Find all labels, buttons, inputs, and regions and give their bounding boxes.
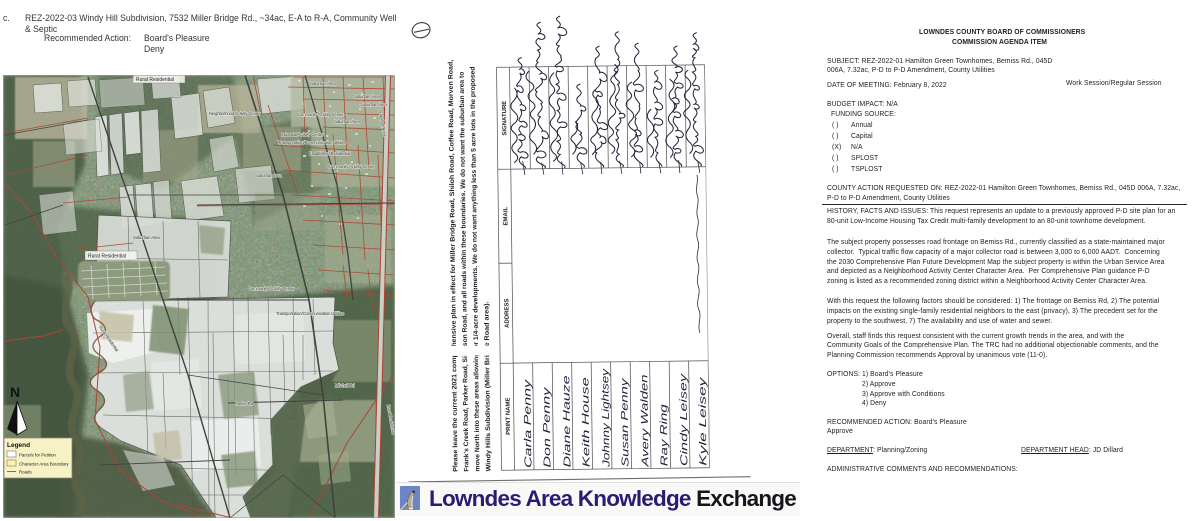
- svg-text:Suburban Area: Suburban Area: [353, 94, 380, 99]
- svg-text:Windy Hills Subdivision (Mille: Windy Hills Subdivision (Miller Bridge R…: [483, 301, 492, 471]
- svg-text:Suburban Area: Suburban Area: [309, 81, 336, 86]
- svg-text:Keith House: Keith House: [580, 376, 592, 467]
- svg-text:PRINT NAME: PRINT NAME: [506, 397, 512, 434]
- svg-text:SIGNATURE: SIGNATURE: [502, 101, 508, 136]
- svg-text:Established Residential: Established Residential: [309, 151, 350, 156]
- svg-text:Rural Residential: Rural Residential: [88, 254, 126, 260]
- svg-text:Suburban Area: Suburban Area: [255, 173, 282, 178]
- svg-text:Diane Hauze: Diane Hauze: [561, 375, 573, 468]
- svg-text:Suburban Area: Suburban Area: [333, 119, 360, 124]
- svg-text:Cindy Leisey: Cindy Leisey: [678, 372, 690, 466]
- svg-text:move North into these areas al: move North into these areas allowing for…: [470, 67, 482, 472]
- svg-text:Ray Ring: Ray Ring: [659, 404, 671, 467]
- svg-text:Community Activity Center: Community Activity Center: [297, 112, 344, 117]
- svg-text:Avery Walden: Avery Walden: [639, 374, 651, 468]
- svg-text:Community Activity Center: Community Activity Center: [248, 286, 295, 291]
- svg-text:Mitchell Rd: Mitchell Rd: [335, 383, 355, 388]
- svg-text:ADDRESS: ADDRESS: [504, 298, 510, 327]
- svg-text:Suburban Area: Suburban Area: [133, 235, 160, 240]
- svg-text:Frank's Creek Road, Parker Roa: Frank's Creek Road, Parker Road, Simpson…: [459, 72, 471, 472]
- svg-text:Suburban Area: Suburban Area: [360, 102, 387, 107]
- svg-text:Parcels for Petition: Parcels for Petition: [19, 453, 56, 458]
- svg-text:Please leave the current 2021: Please leave the current 2021 comprehens…: [447, 60, 459, 472]
- svg-text:Neighborhood Activity Center: Neighborhood Activity Center: [209, 111, 261, 116]
- svg-text:Rural Residential: Rural Residential: [136, 77, 174, 83]
- svg-text:Kyle Leisey: Kyle Leisey: [697, 376, 709, 466]
- svg-text:Johnny Lightsey: Johnny Lightsey: [600, 368, 612, 469]
- svg-text:Legend: Legend: [7, 442, 30, 449]
- svg-text:Don Penny: Don Penny: [541, 386, 553, 468]
- svg-text:Industrial Activity Center: Industrial Activity Center: [281, 132, 324, 137]
- svg-text:Parker Rd: Parker Rd: [235, 401, 254, 406]
- svg-text:Carla Penny: Carla Penny: [522, 378, 534, 468]
- svg-text:Roads: Roads: [19, 470, 32, 475]
- svg-text:Susan Penny: Susan Penny: [619, 377, 631, 467]
- svg-text:Character Area Boundary: Character Area Boundary: [19, 462, 69, 467]
- svg-text:Community Activity Center: Community Activity Center: [328, 164, 375, 169]
- svg-text:EMAIL: EMAIL: [503, 206, 509, 225]
- svg-text:Transportation/Communication U: Transportation/Communication Utilities: [278, 140, 346, 145]
- svg-text:N: N: [10, 384, 20, 400]
- svg-text:Transportation/Communication U: Transportation/Communication Utilities: [276, 311, 344, 316]
